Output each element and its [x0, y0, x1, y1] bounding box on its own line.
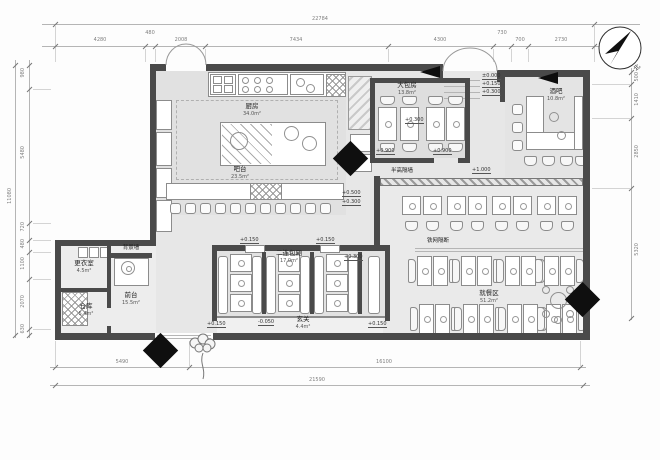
wall [107, 246, 111, 308]
room-area: 10.8m² [547, 96, 565, 102]
dim-top-seg: 480 [145, 30, 155, 36]
construction-line [444, 86, 480, 87]
bar-stool [260, 203, 271, 214]
bar-stool [512, 140, 523, 151]
room-area: 23.5m² [231, 174, 249, 180]
circle-fixture [306, 84, 315, 93]
construction-line [415, 248, 583, 249]
dimension-line [42, 24, 640, 25]
mesh-partition-label: 铁网隔断 [427, 238, 449, 244]
bar-stool [542, 156, 555, 166]
wall [212, 245, 217, 321]
table [433, 256, 448, 286]
wall [385, 245, 390, 321]
room-name: 更衣室 [74, 259, 94, 267]
dim-top-seg: 2730 [555, 37, 568, 43]
booth-bench [368, 256, 380, 314]
wall [55, 333, 155, 340]
wall [374, 176, 380, 248]
booth-table [326, 294, 348, 312]
bar-stool [275, 203, 286, 214]
wall [213, 333, 590, 340]
extension-line [528, 49, 529, 62]
extension-line [33, 89, 51, 90]
room-name: 酒吧 [549, 87, 562, 95]
dim-bottom-seg: 16100 [376, 359, 392, 365]
room-area: 15.5m² [122, 300, 140, 306]
circle-fixture [566, 310, 574, 318]
room-area: 5.4m² [79, 311, 94, 317]
chair [410, 307, 418, 331]
chair [450, 221, 463, 231]
cabinet-box [224, 85, 233, 93]
wall [340, 245, 390, 251]
booth-bench [348, 256, 358, 314]
chair [402, 96, 417, 105]
bar-stool [245, 203, 256, 214]
dim-left-seg: 480 [20, 239, 26, 249]
cabinet-box [213, 85, 222, 93]
bar-stool [170, 203, 181, 214]
table [378, 107, 397, 141]
room-label-pub-bar: 酒吧10.8m² [547, 88, 565, 103]
extension-line [145, 49, 146, 62]
elevation-marker: +0.900 [433, 148, 452, 155]
chair [471, 221, 484, 231]
chair [380, 96, 395, 105]
elevation-marker: +0.150 [482, 81, 501, 88]
dim-left-seg: 2070 [20, 295, 26, 308]
booth-table [230, 254, 252, 272]
chair [561, 221, 574, 231]
door-arrow-marker [420, 66, 440, 78]
double-door-arc-icon [164, 42, 208, 66]
cabinet-box [78, 247, 88, 258]
dim-bottom-seg: 5490 [116, 359, 129, 365]
extension-line [33, 279, 51, 280]
table [417, 256, 432, 286]
chair [452, 259, 460, 283]
wall [262, 252, 266, 314]
room-label-booths: 二连包厢17.0m² [276, 250, 302, 265]
booth-bench [314, 256, 324, 314]
table [468, 196, 487, 215]
bar-stool [320, 203, 331, 214]
table [544, 256, 559, 286]
extension-line [55, 341, 56, 366]
circle-fixture [230, 132, 248, 150]
room-name: 前台 [124, 291, 137, 299]
circle-fixture [126, 266, 132, 272]
dimension-line [42, 46, 602, 47]
extension-line [592, 84, 630, 85]
door-arrow-marker [538, 72, 558, 84]
table [505, 256, 520, 286]
table [461, 256, 476, 286]
bar-stool [215, 203, 226, 214]
cabinet-box [224, 76, 233, 84]
extension-line [33, 329, 51, 330]
table [521, 256, 536, 286]
wall [358, 252, 362, 314]
booth-table [278, 294, 300, 312]
chair [540, 221, 553, 231]
booth-table [278, 274, 300, 292]
room-name: 仓库 [79, 302, 92, 310]
dim-left-seg: 630 [20, 324, 26, 334]
extension-line [33, 252, 51, 253]
elevation-marker: -0.050 [258, 319, 274, 326]
room-name: 就餐区 [479, 289, 499, 297]
circle-fixture [302, 136, 317, 151]
dim-bottom-total: 21590 [309, 377, 325, 383]
table [492, 196, 511, 215]
table [513, 196, 532, 215]
elevation-marker: +0.300 [482, 89, 501, 96]
dim-top-seg: 2008 [175, 37, 188, 43]
circle-fixture [554, 316, 562, 324]
bar-stool [200, 203, 211, 214]
table [423, 196, 442, 215]
circle-fixture [284, 126, 299, 141]
chair [535, 259, 543, 283]
chair [428, 96, 443, 105]
table [479, 304, 494, 334]
extension-line [33, 223, 51, 224]
dim-top-seg: 4300 [434, 37, 447, 43]
elevation-marker: +0.300 [342, 199, 361, 206]
extension-line [33, 240, 51, 241]
counter [156, 132, 172, 166]
extension-line [580, 341, 581, 366]
extension-line [388, 49, 389, 62]
circle-fixture [266, 86, 273, 93]
wall [465, 78, 470, 163]
dim-right-seg: 500 [634, 72, 640, 82]
booth-bench [266, 256, 276, 314]
dim-right-seg: 1410 [634, 93, 640, 106]
equipment-box [250, 183, 282, 200]
table [402, 196, 421, 215]
dim-tick [629, 316, 635, 322]
circle-fixture [542, 310, 550, 318]
elevation-marker: ±0.000 [482, 73, 501, 80]
bar-stool [524, 156, 537, 166]
table [435, 304, 450, 334]
dim-top-seg: 4280 [94, 37, 107, 43]
table [477, 256, 492, 286]
wall [310, 252, 314, 314]
dimension-line [15, 60, 16, 338]
wall [55, 240, 156, 246]
dimension-line [50, 367, 586, 368]
elevation-marker: +0.150 [316, 237, 335, 244]
room-name: 玄关 [296, 315, 309, 323]
wall [206, 64, 442, 71]
dim-right-seg: 2850 [634, 145, 640, 158]
extension-line [592, 188, 630, 189]
half-wall-label: 半高隔墙 [391, 168, 413, 174]
wall [370, 78, 470, 83]
extension-line [155, 49, 156, 62]
bar-stool [230, 203, 241, 214]
wall [110, 253, 152, 258]
chair [454, 307, 462, 331]
counter [156, 100, 172, 130]
table [419, 304, 434, 334]
circle-fixture [242, 86, 249, 93]
wall [370, 158, 434, 163]
booth-table [326, 274, 348, 292]
bar-stool [185, 203, 196, 214]
circle-fixture [254, 86, 261, 93]
plant-icon [183, 333, 223, 381]
dim-left-seg: 5480 [20, 146, 26, 159]
elevation-marker: +0.150 [207, 321, 226, 328]
table [558, 196, 577, 215]
wall [500, 70, 505, 102]
equipment-box [326, 74, 346, 97]
circle-fixture [254, 77, 261, 84]
booth-table [230, 294, 252, 312]
dimension-line [631, 68, 632, 320]
elevation-marker: +0.900 [376, 148, 395, 155]
dim-left-total: 11080 [7, 188, 13, 204]
table [463, 304, 478, 334]
floor-plan: 北 厨房34.0m² 吧台23.5m² 大包房13.8m² 酒吧10.8m² 就… [0, 0, 660, 460]
room-label-reception: 前台15.5m² [122, 292, 140, 307]
chair [498, 307, 506, 331]
bar-stool [512, 122, 523, 133]
chair [402, 143, 417, 152]
elevation-marker: +0.150 [240, 237, 259, 244]
elevation-marker: +0.150 [368, 321, 387, 328]
chair [516, 221, 529, 231]
dim-top-seg: 700 [515, 37, 525, 43]
table [537, 196, 556, 215]
room-label-changing: 更衣室4.5m² [74, 260, 94, 275]
table [560, 256, 575, 286]
room-name: 二连包厢 [276, 249, 302, 257]
chair [495, 221, 508, 231]
dimension-line [50, 385, 590, 386]
circle-fixture [296, 78, 305, 87]
dim-top-seg: 7434 [290, 37, 303, 43]
circle-fixture [542, 286, 550, 294]
booth-bench [218, 256, 228, 314]
table [523, 304, 538, 334]
bar-stool [290, 203, 301, 214]
room-name: 吧台 [233, 165, 246, 173]
wall [370, 78, 375, 163]
room-area: 51.2m² [480, 298, 498, 304]
table [507, 304, 522, 334]
room-area: 4.5m² [77, 268, 92, 274]
dim-left-seg: 980 [20, 68, 26, 78]
table [447, 196, 466, 215]
circle-fixture [550, 292, 567, 309]
half-height-partition [380, 178, 583, 186]
table [400, 107, 419, 141]
room-label-dining: 就餐区51.2m² [479, 290, 499, 305]
room-name: 厨房 [245, 102, 258, 110]
bar-stool [512, 104, 523, 115]
table [446, 107, 465, 141]
room-label-large-room: 大包房13.8m² [397, 82, 417, 97]
dim-left-seg: 720 [20, 222, 26, 232]
cabinet-box [213, 76, 222, 84]
elevation-marker: +0.300 [344, 254, 363, 261]
booth-bench [252, 256, 262, 314]
circle-fixture [242, 77, 249, 84]
staircase [348, 76, 372, 130]
room-label-bar-counter: 吧台23.5m² [231, 166, 249, 181]
room-name: 大包房 [397, 81, 417, 89]
chair [448, 96, 463, 105]
bar-stool [560, 156, 573, 166]
dim-top-total: 22784 [312, 16, 328, 22]
elevation-marker: +1.000 [472, 167, 491, 174]
wall [107, 326, 111, 333]
chair [426, 221, 439, 231]
circle-fixture [549, 112, 559, 122]
background-wall-label: 背景墙 [123, 245, 140, 251]
chair [405, 221, 418, 231]
extension-line [592, 118, 630, 119]
room-area: 4.4m² [296, 324, 311, 330]
room-area: 17.0m² [280, 258, 298, 264]
table [426, 107, 445, 141]
bar-stool [305, 203, 316, 214]
dimension-line [29, 60, 30, 338]
room-label-foyer: 玄关4.4m² [296, 316, 311, 331]
construction-line [444, 92, 480, 93]
circle-fixture [557, 131, 566, 140]
dim-top-seg: 730 [497, 30, 507, 36]
room-area: 34.0m² [243, 111, 261, 117]
room-label-kitchen: 厨房34.0m² [243, 103, 261, 118]
dim-left-seg: 1100 [20, 257, 26, 270]
elevation-marker: +0.300 [405, 117, 424, 124]
room-area: 13.8m² [398, 90, 416, 96]
entrance-door-arc-icon [441, 46, 499, 72]
counter [320, 245, 340, 253]
construction-line [415, 251, 583, 252]
wall [55, 288, 109, 292]
dim-right-seg: 5320 [634, 243, 640, 256]
counter [574, 96, 583, 150]
wall [150, 64, 156, 246]
elevation-marker: +0.500 [342, 190, 361, 197]
extension-line [511, 49, 512, 62]
cabinet-box [89, 247, 99, 258]
chair [496, 259, 504, 283]
room-label-storage: 仓库5.4m² [79, 303, 94, 318]
booth-table [230, 274, 252, 292]
chair [408, 259, 416, 283]
circle-fixture [266, 77, 273, 84]
